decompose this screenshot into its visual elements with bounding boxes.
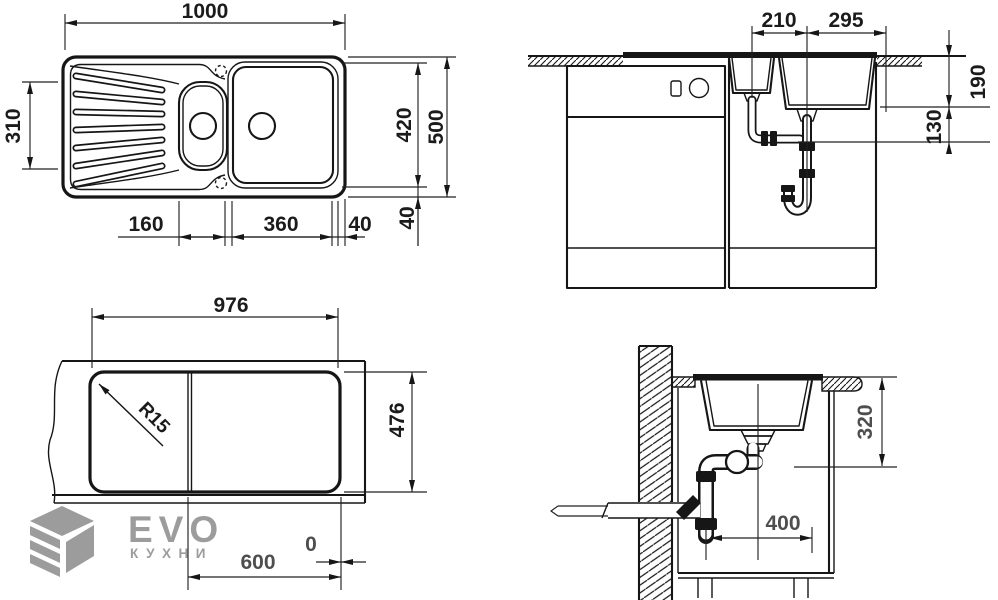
dim-text-0: 0 (305, 533, 317, 556)
dim-text-295: 295 (828, 9, 863, 32)
side-section-view: 320 400 (551, 346, 897, 600)
dim-text-400: 400 (765, 512, 800, 535)
countertop-section-left (672, 377, 695, 387)
dim-text-190: 190 (967, 64, 990, 99)
front-dimensions: 210 295 190 130 (752, 9, 990, 212)
dim-text-360: 360 (263, 213, 298, 236)
dim-text-160: 160 (128, 213, 163, 236)
worktop-torn-edge (48, 361, 62, 503)
wall-hatch (639, 346, 672, 600)
small-bowl-drain (190, 113, 216, 139)
dim-text-130: 130 (923, 109, 946, 144)
drawing-canvas: EVO КУХНИ (0, 0, 998, 600)
evo-cube-icon (30, 506, 94, 577)
cutout-plan-view: R15 976 476 600 0 (48, 294, 427, 590)
dim-text-310: 310 (2, 108, 25, 143)
drainer-grooves (76, 76, 162, 184)
main-bowl-drain (249, 113, 275, 139)
dim-text-420: 420 (393, 107, 416, 142)
dim-text-320: 320 (854, 404, 877, 439)
tap-hole-bottom (216, 178, 227, 189)
trap-nut (781, 185, 795, 192)
countertop-hatch-right (877, 57, 922, 66)
dim-text-1000: 1000 (182, 0, 229, 23)
plan-view: 1000 310 420 500 160 360 40 40 (2, 0, 456, 246)
sink-rim-side-section (693, 374, 823, 381)
control-button-icon (671, 81, 681, 96)
brand-name: EVO (128, 509, 224, 550)
sink-rim-section (623, 52, 877, 58)
sink-technical-drawing: EVO КУХНИ (0, 0, 998, 600)
tap-hole-top (216, 66, 227, 77)
small-bowl-outer (179, 82, 227, 170)
main-bowl-section-inner (782, 58, 872, 105)
cutout-outline (90, 372, 340, 492)
bowl-side-section (701, 381, 812, 452)
cube-right-face (66, 525, 94, 573)
pipe-nut (696, 471, 716, 482)
dim-text-210: 210 (761, 9, 796, 32)
pipe-nut (770, 131, 777, 146)
pipe-nut (761, 131, 768, 146)
dim-text-600: 600 (240, 551, 275, 574)
main-bowl-section-outer (779, 58, 875, 109)
countertop-section-right (822, 377, 862, 391)
brand-watermark: EVO КУХНИ (30, 506, 224, 577)
dim-text-500: 500 (425, 109, 448, 144)
dim-text-976: 976 (213, 294, 248, 317)
countertop-hatch-left (528, 57, 623, 66)
front-section-view: 210 295 190 130 (528, 9, 990, 288)
control-dial-icon (690, 79, 709, 98)
trap-nut (781, 195, 795, 202)
pipe-union (726, 451, 748, 473)
dim-text-40-right: 40 (348, 213, 371, 236)
main-bowl-outer (228, 62, 338, 188)
drain-piping (752, 100, 815, 211)
dim-text-40-bottom: 40 (396, 206, 419, 229)
dim-text-476: 476 (386, 402, 409, 437)
dishwasher-cabinet (567, 66, 725, 288)
brand-subtitle: КУХНИ (130, 546, 213, 561)
